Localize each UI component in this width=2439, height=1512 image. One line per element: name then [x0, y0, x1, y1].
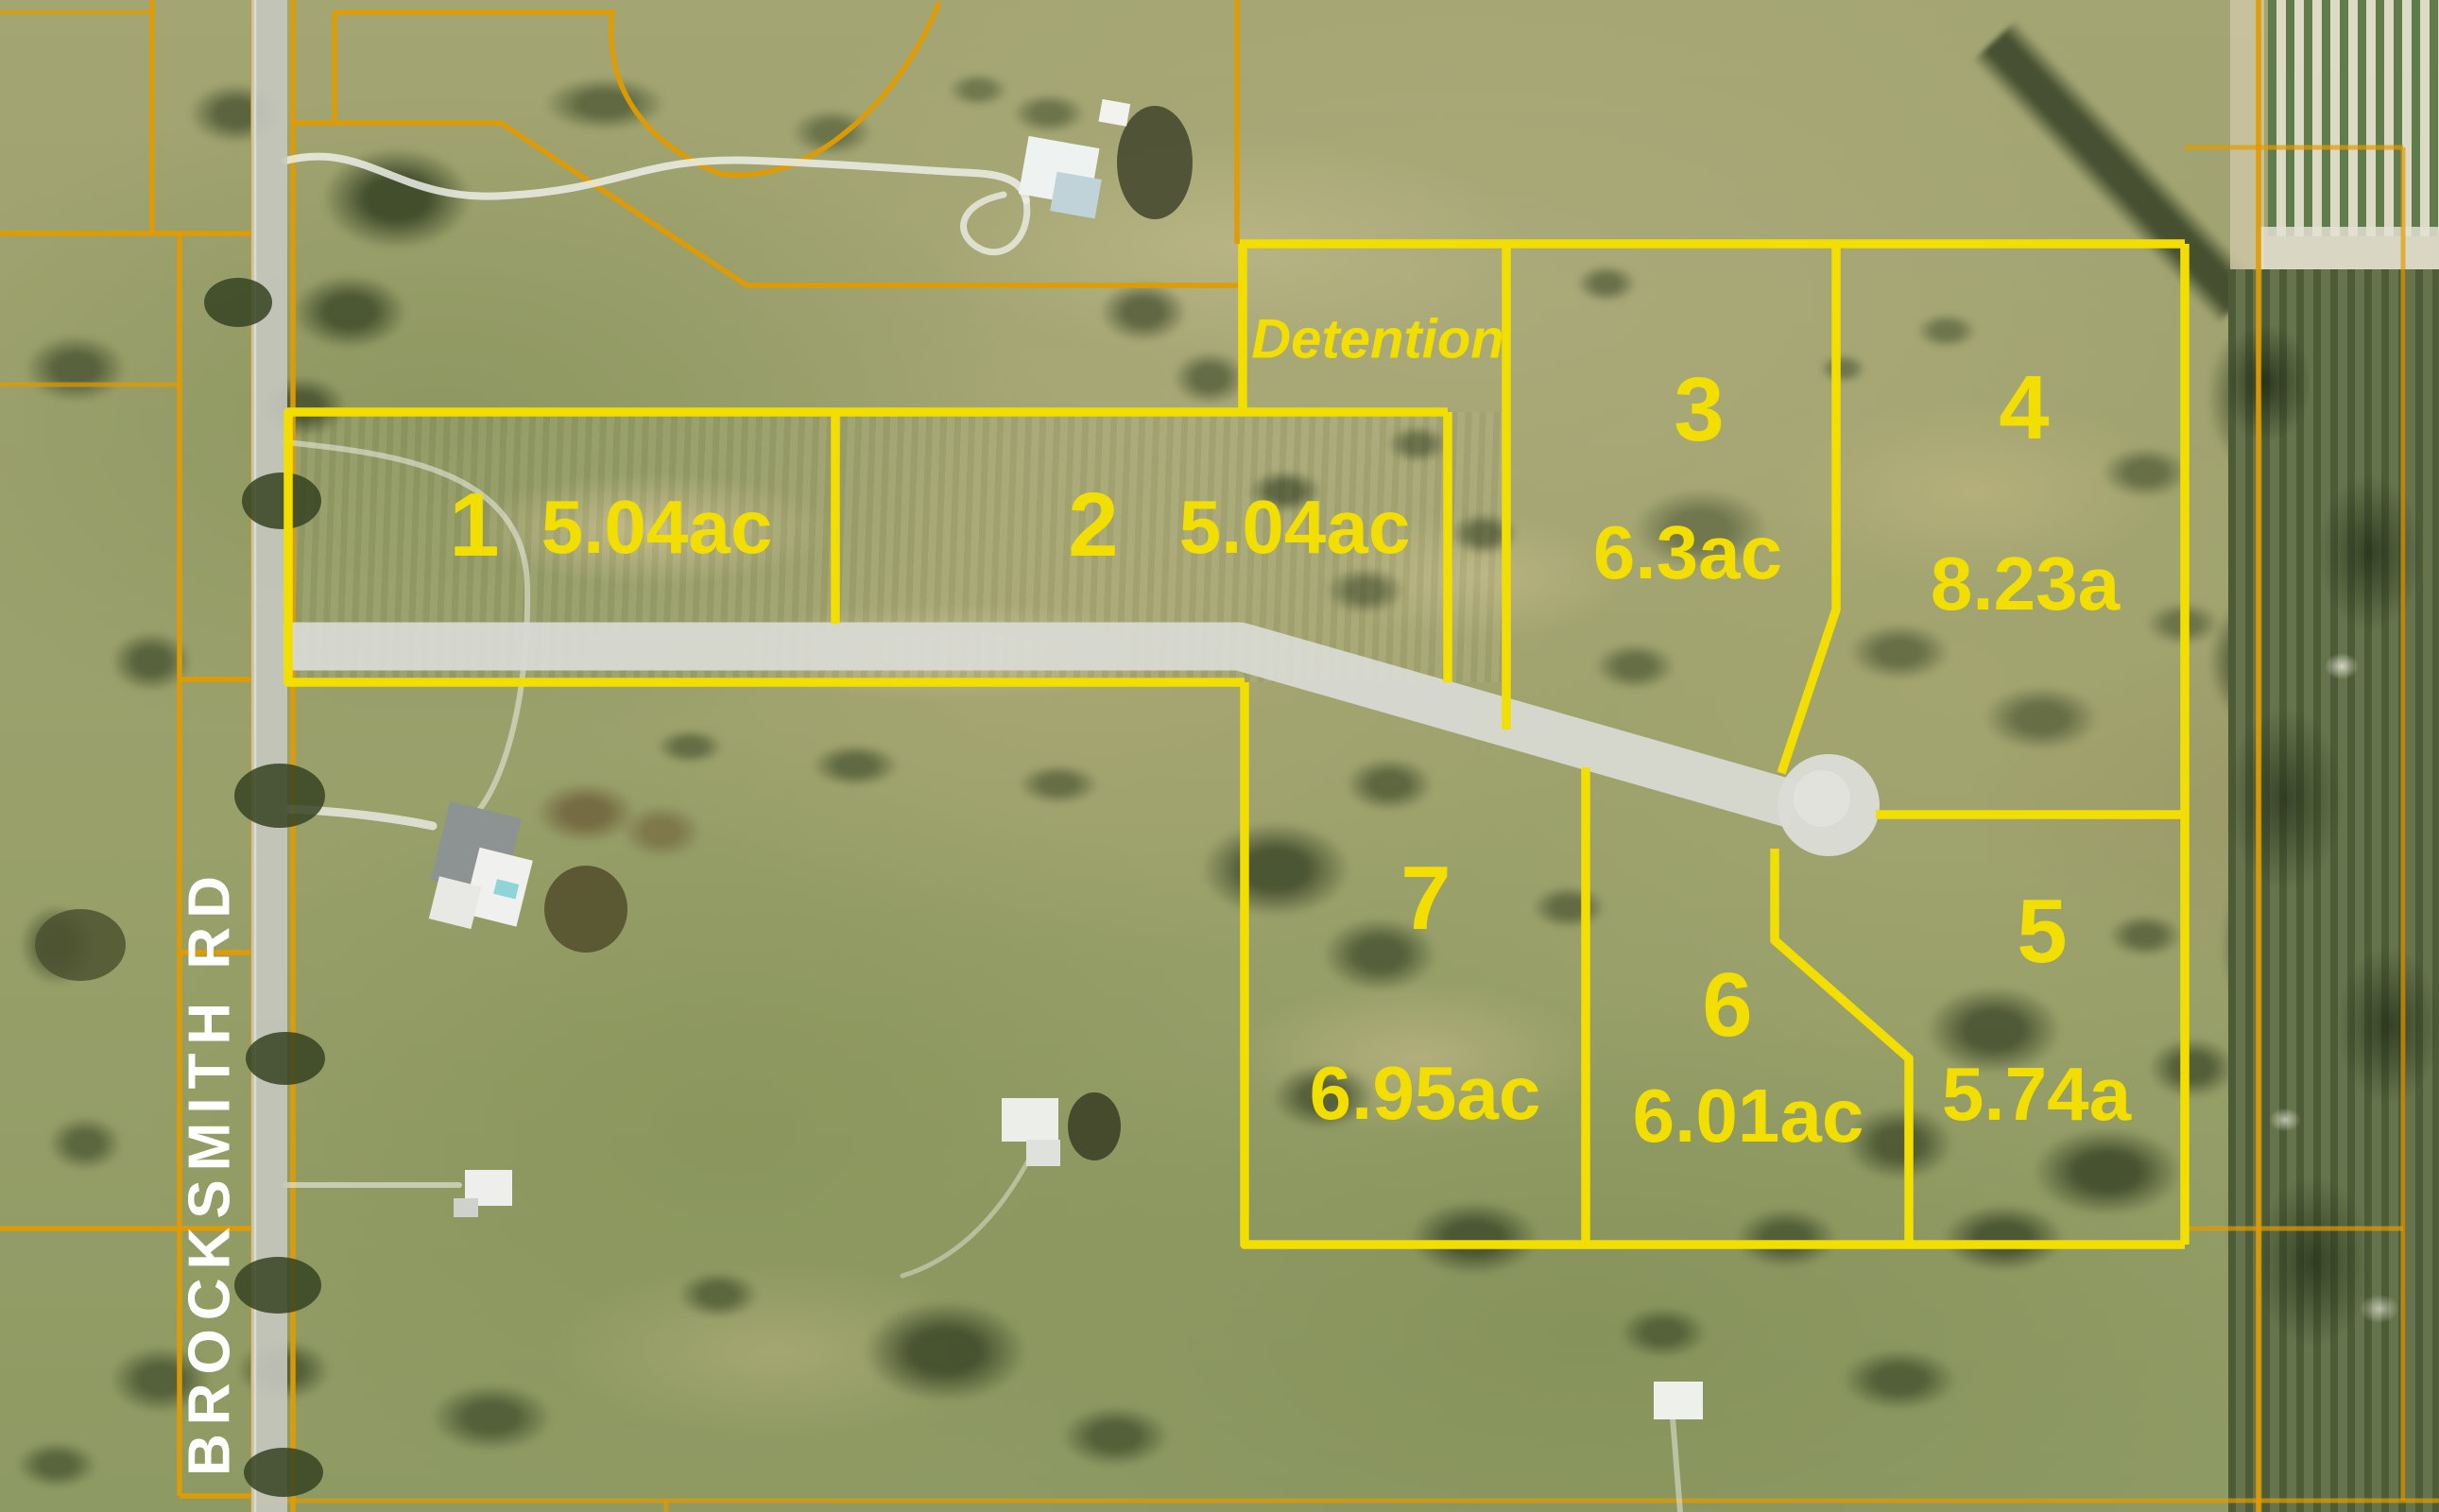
lot-6-area-label: 6.01ac	[1633, 1073, 1864, 1160]
lot-2-area-label: 5.04ac	[1179, 484, 1411, 571]
pond-icon	[1117, 106, 1193, 219]
lot-boundary-lines	[288, 244, 2185, 1245]
detention-label: Detention	[1251, 308, 1503, 371]
lot-3-area-label: 6.3ac	[1593, 509, 1782, 596]
lot-5-area-label: 5.74a	[1942, 1051, 2131, 1138]
house-icon	[1654, 1382, 1703, 1419]
lot-6-number-label: 6	[1702, 954, 1752, 1057]
brocksmith-rd-label: BROCKSMITH RD	[177, 868, 244, 1476]
barn-icon	[1002, 1098, 1060, 1166]
house-icon	[454, 1170, 512, 1217]
lot-4-number-label: 4	[1999, 356, 2049, 460]
house-icon	[1017, 88, 1130, 221]
pond-icon	[544, 866, 627, 953]
lot-7-area-label: 6.95ac	[1310, 1050, 1541, 1137]
lot-5-6-divider	[1775, 849, 1909, 1245]
pond-icon	[35, 909, 126, 981]
aerial-parcel-map: 1 5.04ac 2 5.04ac 3 6.3ac 4 8.23a 5 5.74…	[0, 0, 2439, 1512]
house-icon	[421, 801, 542, 939]
pond-icon	[1068, 1092, 1121, 1160]
roads	[251, 0, 1880, 1512]
lot-3-4-divider	[1781, 244, 1836, 773]
lot-5-number-label: 5	[2017, 880, 2067, 984]
map-overlay-svg	[0, 0, 2439, 1512]
subdivision-road	[283, 646, 1795, 805]
lot-2-number-label: 2	[1068, 473, 1118, 577]
lot-7-number-label: 7	[1400, 847, 1451, 951]
parcel-grid-lines	[0, 0, 2439, 1512]
lot-3-number-label: 3	[1674, 358, 1724, 462]
lot-1-area-label: 5.04ac	[541, 484, 773, 571]
lot-4-area-label: 8.23a	[1931, 541, 2120, 627]
lot-1-number-label: 1	[449, 473, 499, 577]
